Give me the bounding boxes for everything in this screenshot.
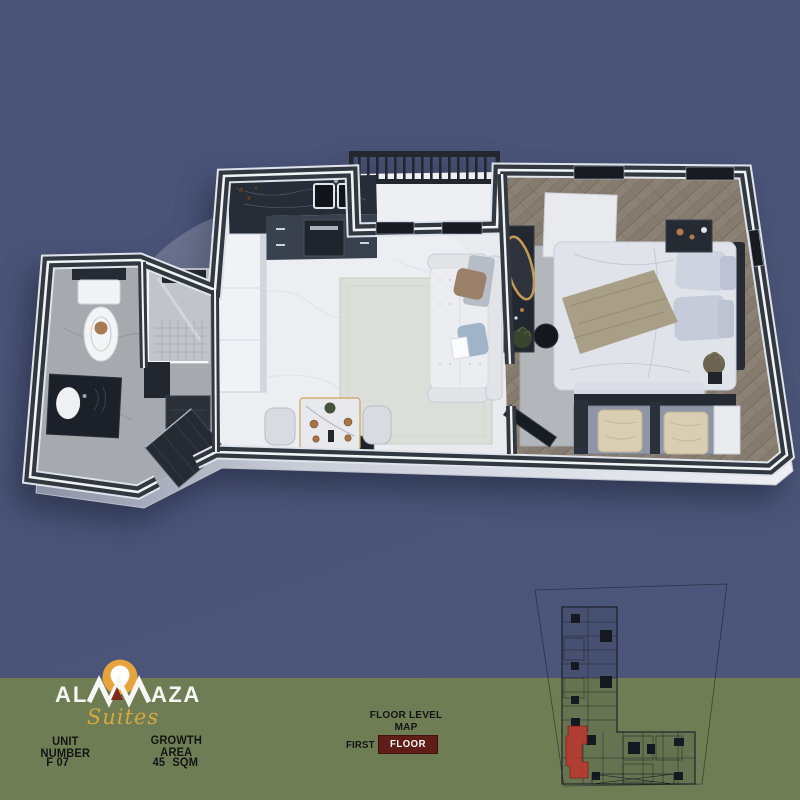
floor-level-map-title: FLOOR LEVEL MAP	[360, 709, 452, 733]
unit-number-value: F 07	[26, 757, 89, 769]
dining-chair-left	[265, 408, 295, 445]
beige-cushion	[598, 410, 642, 452]
bedroom-window	[574, 166, 624, 179]
side-shelf	[714, 406, 740, 454]
floor-badge: FLOOR	[378, 735, 438, 754]
brand-text-left: AL	[55, 682, 88, 707]
bathroom-vanity	[46, 374, 121, 438]
dining-chair-right	[363, 406, 391, 444]
pillow	[675, 248, 728, 291]
bench-platform	[574, 394, 740, 454]
vanity-stool	[534, 324, 558, 348]
brand-text-right: AZA	[151, 682, 201, 707]
balcony-window	[442, 222, 482, 234]
brand-suffix: Suites	[87, 705, 159, 729]
table-plant	[325, 403, 336, 414]
oven-icon	[304, 220, 344, 256]
balcony-window	[376, 222, 414, 234]
page: AL AZA Suites UNIT NUMBER F 07 GROWTH AR…	[0, 0, 800, 800]
beige-cushion	[664, 412, 708, 454]
growth-area-label: GROWTH AREA	[136, 735, 217, 759]
bedroom-window	[686, 167, 734, 180]
floor-first-label: FIRST	[344, 740, 377, 751]
floor-badge-text: FLOOR	[390, 739, 426, 750]
nightstand	[666, 220, 712, 252]
brand-logo: AL AZA Suites	[25, 650, 225, 732]
sofa	[428, 254, 502, 402]
floor-level-map	[528, 578, 734, 794]
apartment-floor-plan-render	[14, 138, 800, 512]
book	[451, 337, 470, 359]
growth-area-value: 45 SQM	[136, 757, 215, 769]
